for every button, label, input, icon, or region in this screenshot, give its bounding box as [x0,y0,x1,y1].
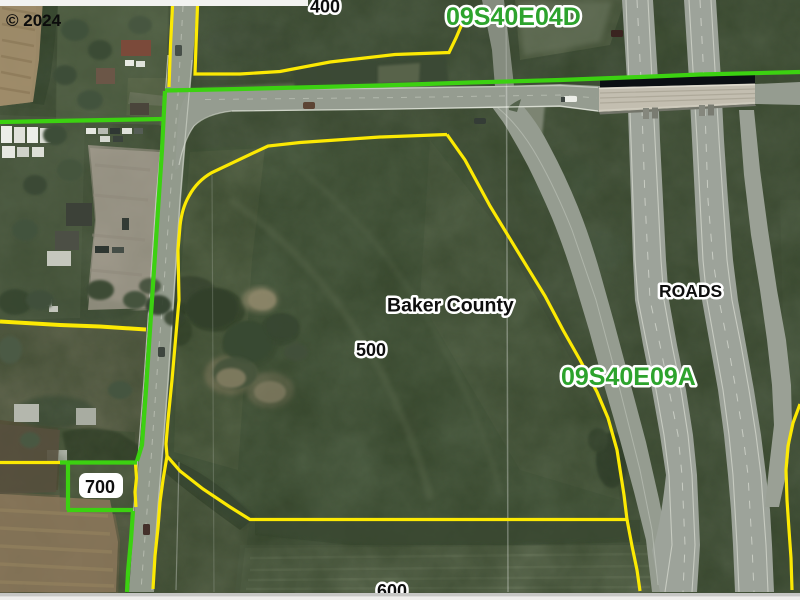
svg-text:Baker County: Baker County [387,295,514,317]
svg-text:400: 400 [310,0,340,17]
svg-text:500: 500 [356,340,386,360]
svg-text:ROADS: ROADS [659,281,722,301]
svg-text:09S40E09A: 09S40E09A [561,363,696,391]
svg-text:© 2024: © 2024 [6,11,62,30]
svg-text:700: 700 [85,477,115,497]
svg-text:09S40E04D: 09S40E04D [446,3,581,31]
